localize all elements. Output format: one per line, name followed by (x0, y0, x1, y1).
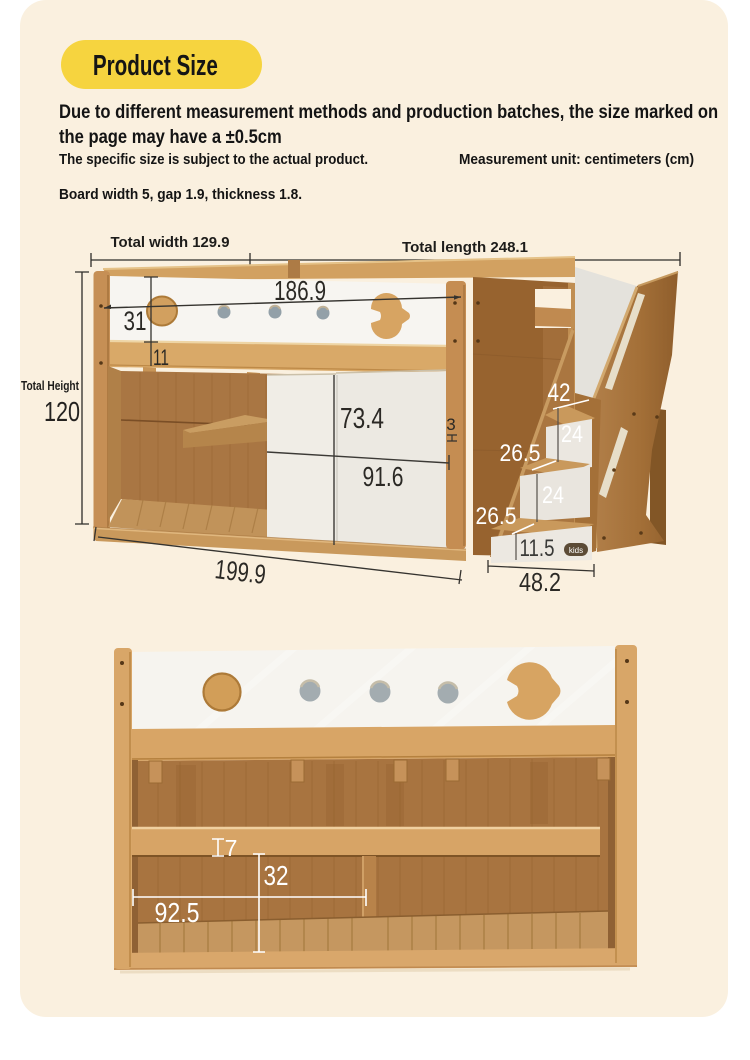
svg-text:11.5: 11.5 (520, 535, 555, 562)
svg-text:Total Height: Total Height (21, 378, 80, 393)
svg-text:199.9: 199.9 (213, 554, 267, 590)
svg-text:91.6: 91.6 (363, 461, 404, 492)
svg-text:11: 11 (153, 345, 169, 370)
svg-text:92.5: 92.5 (155, 897, 200, 928)
svg-text:32: 32 (264, 860, 289, 891)
svg-text:31: 31 (124, 306, 147, 336)
svg-text:7: 7 (225, 835, 238, 861)
svg-text:26.5: 26.5 (500, 440, 541, 467)
svg-text:186.9: 186.9 (274, 275, 326, 306)
svg-text:Total length 248.1: Total length 248.1 (402, 239, 528, 256)
svg-text:42: 42 (548, 379, 571, 407)
svg-text:48.2: 48.2 (519, 567, 561, 597)
svg-text:kids: kids (569, 546, 583, 555)
svg-text:24: 24 (561, 421, 583, 448)
svg-text:Total width 129.9: Total width 129.9 (111, 234, 230, 251)
svg-text:120: 120 (44, 396, 80, 427)
svg-text:3: 3 (446, 415, 455, 434)
svg-text:24: 24 (542, 482, 564, 509)
svg-text:73.4: 73.4 (340, 403, 384, 435)
svg-text:26.5: 26.5 (476, 503, 517, 530)
